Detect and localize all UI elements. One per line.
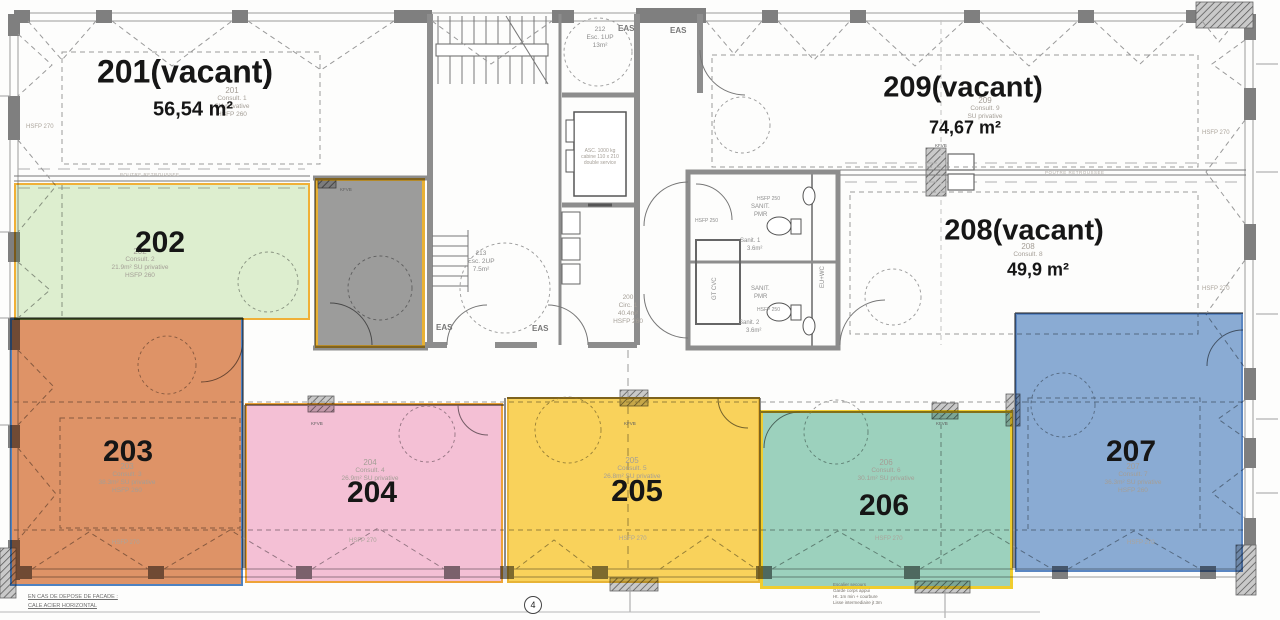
- eas-label-2: EAS: [670, 26, 686, 35]
- hsfp250-label-2: HSFP 250: [695, 218, 718, 225]
- room-206-annotation: 206 Consult. 6 30.1m² SU privative: [857, 458, 914, 483]
- eas-label-1: EAS: [618, 24, 634, 33]
- stair1-type: Esc. 1UP: [586, 34, 613, 42]
- note-right-line1: Escalier secours: [833, 582, 866, 588]
- elevator-annotation: ASC. 1000 kg cabine 110 x 210 double ser…: [581, 148, 619, 166]
- poutre-label-right: POUTRE RETROUSSEE: [1045, 169, 1105, 176]
- room-206-label: 206: [859, 489, 909, 523]
- hsfp270-203: HSFP 270: [112, 540, 140, 547]
- room-204-type: Consult. 4: [341, 467, 398, 475]
- room-208-area: 49,9 m²: [1007, 260, 1069, 281]
- sanit2-name: Sanit. 2: [739, 320, 759, 327]
- floor-plan: 201 Consult. 1 SU privative HSFP 260 202…: [0, 0, 1280, 620]
- hsfp250-label-3: HSFP 250: [757, 307, 780, 314]
- room-205-label: 205: [611, 473, 663, 509]
- stair2-annotation: 213 Esc. 2UP 7.5m²: [467, 250, 494, 274]
- room-202-label: 202: [135, 226, 185, 260]
- stair1-annotation: 212 Esc. 1UP 13m²: [586, 26, 613, 50]
- kfvb-tag-4: KFVB: [936, 420, 948, 427]
- kfvb-tag-3: KFVB: [624, 420, 636, 427]
- hsfp270-207: HSFP 270: [1127, 540, 1155, 547]
- room-207-type: Consult. 7: [1104, 471, 1161, 479]
- kfvb-tag-2: KFVB: [311, 420, 323, 427]
- corridor-type: Circ. 1: [613, 302, 643, 310]
- stair2-type: Esc. 2UP: [467, 258, 494, 266]
- note-left-line2: CALE ACIER HORIZONTAL: [28, 603, 97, 610]
- corridor-hsfp: HSFP 260: [613, 318, 643, 326]
- eas-label-3: EAS: [436, 323, 452, 332]
- sanit1-area: 3.6m²: [747, 246, 762, 253]
- hsfp270-204: HSFP 270: [349, 538, 377, 545]
- hsfp250-label-1: HSFP 250: [757, 196, 780, 203]
- room-204-num: 204: [341, 458, 398, 467]
- room-208-type: Consult. 8: [1013, 251, 1042, 259]
- note-left-line1: EN CAS DE DEPOSE DE FACADE :: [28, 594, 118, 601]
- room-207-label: 207: [1106, 435, 1156, 469]
- room-201-area: 56,54 m²: [153, 99, 233, 122]
- room-204-label: 204: [347, 476, 397, 510]
- room-202-priv: 21.9m² SU privative: [111, 264, 168, 272]
- room-203-hsfp: HSFP 260: [98, 487, 155, 495]
- note-right-line3: Ht. 1m min + courbure: [833, 594, 878, 600]
- room-205-num: 205: [603, 456, 660, 465]
- hsfp270-209: HSFP 270: [1202, 130, 1230, 137]
- room-202-hsfp: HSFP 260: [111, 272, 168, 280]
- room-207-hsfp: HSFP 260: [1104, 487, 1161, 495]
- room-209-type: Consult. 9: [967, 105, 1002, 113]
- kfvb-tag-1: KFVB: [340, 186, 352, 193]
- elevator: [562, 112, 626, 284]
- elevator-line3: double service: [581, 160, 619, 166]
- corridor-area: 40.4m²: [613, 310, 643, 318]
- sanit2-pmr: PMR: [754, 294, 767, 301]
- sanit1-pmr: PMR: [754, 212, 767, 219]
- room-203-priv: 38.3m² SU privative: [98, 479, 155, 487]
- room-203-type: Consult. 3: [98, 471, 155, 479]
- corridor-annotation: 200 Circ. 1 40.4m² HSFP 260: [613, 294, 643, 326]
- room-206-type: Consult. 6: [857, 467, 914, 475]
- room-208-label: 208(vacant): [944, 215, 1104, 248]
- room-201-label: 201(vacant): [97, 54, 273, 91]
- grid-axis-marker: 4: [524, 596, 542, 614]
- room-206-num: 206: [857, 458, 914, 467]
- sanit1-name: Sanit. 1: [740, 238, 760, 245]
- stair2-area: 7.5m²: [467, 266, 494, 274]
- room-209-area: 74,67 m²: [929, 118, 1001, 139]
- sanit2-area: 3.6m²: [746, 328, 761, 335]
- hsfp270-205: HSFP 270: [619, 536, 647, 543]
- gt-cvc-label: GT CVC: [712, 277, 719, 300]
- stair1-num: 212: [586, 26, 613, 34]
- note-right-line2: Garde corps appui: [833, 588, 870, 594]
- utility-room-overlay: [315, 178, 425, 348]
- room-203-label: 203: [103, 435, 153, 469]
- note-right-line4: Lisse intermediaire jt 3m: [833, 600, 882, 606]
- room-205-type: Consult. 5: [603, 465, 660, 473]
- room-209-label: 209(vacant): [883, 72, 1043, 105]
- corridor-num: 200: [613, 294, 643, 302]
- eu-wc-label: EU+WC: [820, 266, 827, 288]
- room-206-priv: 30.1m² SU privative: [857, 475, 914, 483]
- stair1-area: 13m²: [586, 42, 613, 50]
- hsfp270-208: HSFP 270: [1202, 286, 1230, 293]
- hsfp270-206: HSFP 270: [875, 536, 903, 543]
- room-207-priv: 36.3m² SU privative: [1104, 479, 1161, 487]
- stair2-num: 213: [467, 250, 494, 258]
- eas-label-4: EAS: [532, 324, 548, 333]
- sanit1-title: SANIT.: [751, 204, 770, 211]
- sanit2-title: SANIT.: [751, 286, 770, 293]
- hsfp270-201: HSFP 270: [26, 124, 54, 131]
- kfvb-tag-5: KFVB: [935, 142, 947, 149]
- poutre-label-left: POUTRE RETROUSSEE: [120, 171, 180, 178]
